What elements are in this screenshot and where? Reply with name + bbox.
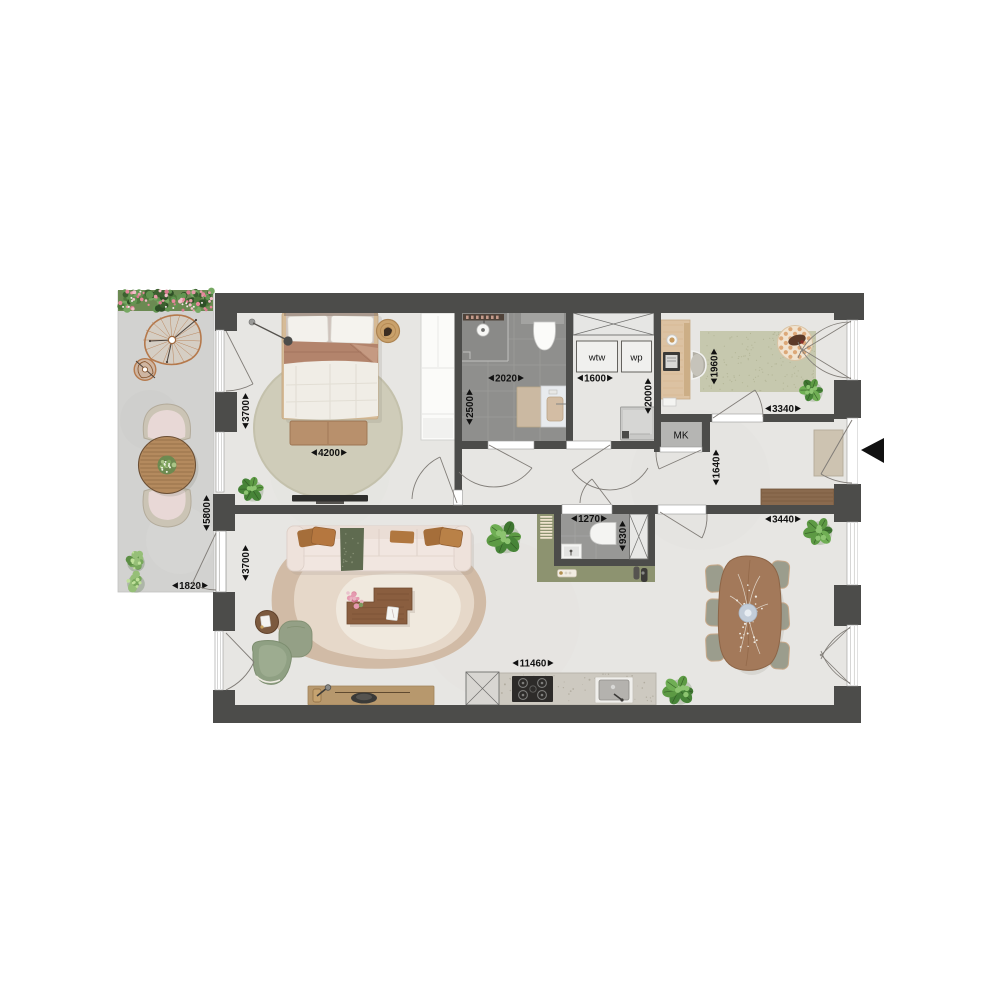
svg-text:wtw: wtw (588, 353, 606, 364)
svg-text:3700: 3700 (241, 552, 252, 574)
svg-text:3340: 3340 (772, 404, 794, 415)
svg-text:3700: 3700 (241, 400, 252, 422)
svg-text:2020: 2020 (495, 373, 517, 384)
svg-text:5800: 5800 (202, 502, 213, 524)
svg-text:930: 930 (618, 527, 629, 544)
svg-text:2000: 2000 (643, 385, 654, 407)
svg-text:MK: MK (674, 431, 689, 442)
svg-text:3440: 3440 (772, 514, 794, 525)
svg-text:1600: 1600 (584, 373, 606, 384)
svg-text:wp: wp (629, 353, 642, 364)
svg-text:1270: 1270 (578, 514, 600, 525)
svg-text:1960: 1960 (709, 355, 720, 377)
svg-text:2500: 2500 (465, 396, 476, 418)
svg-text:11460: 11460 (520, 658, 547, 669)
svg-text:4200: 4200 (318, 448, 340, 459)
svg-text:1640: 1640 (711, 456, 722, 478)
